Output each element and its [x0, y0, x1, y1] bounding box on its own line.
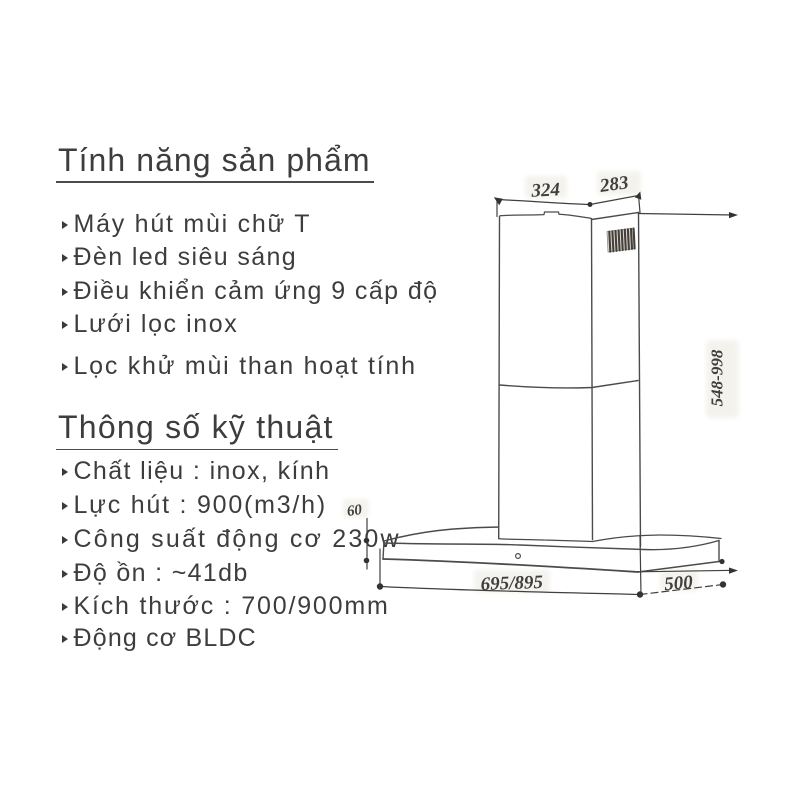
svg-text:283: 283 [598, 172, 630, 197]
svg-text:60: 60 [346, 502, 364, 520]
svg-text:548-998: 548-998 [708, 349, 727, 406]
svg-text:324: 324 [530, 179, 561, 202]
svg-text:500: 500 [663, 572, 694, 595]
svg-text:695/895: 695/895 [480, 572, 543, 595]
